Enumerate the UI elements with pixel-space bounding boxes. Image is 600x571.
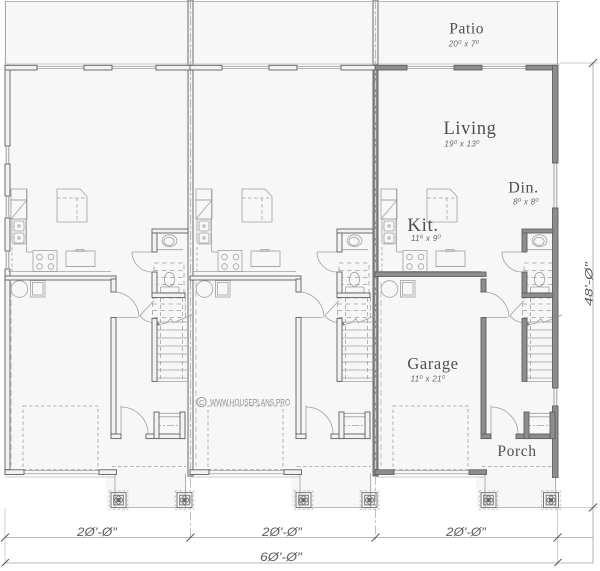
svg-text:110 x 210: 110 x 210 xyxy=(411,375,446,384)
svg-text:Din.: Din. xyxy=(508,180,538,197)
svg-text:2Ø'-Ø″: 2Ø'-Ø″ xyxy=(76,527,118,539)
svg-text:190 x 130: 190 x 130 xyxy=(444,140,480,149)
svg-text:2Ø'-Ø″: 2Ø'-Ø″ xyxy=(445,527,487,539)
svg-text:48'-Ø″: 48'-Ø″ xyxy=(584,260,596,306)
svg-text:Patio: Patio xyxy=(449,21,484,38)
svg-text:200 x 70: 200 x 70 xyxy=(448,40,480,49)
svg-text:6Ø'-Ø″: 6Ø'-Ø″ xyxy=(260,552,303,564)
svg-text:WWW.HOUSEPLANS.PRO: WWW.HOUSEPLANS.PRO xyxy=(210,398,290,409)
svg-text:2Ø'-Ø″: 2Ø'-Ø″ xyxy=(261,527,303,539)
svg-text:116 x 90: 116 x 90 xyxy=(411,234,442,243)
svg-text:Living: Living xyxy=(444,119,497,139)
svg-text:Garage: Garage xyxy=(407,354,458,373)
svg-text:Porch: Porch xyxy=(497,443,536,460)
svg-text:Kit.: Kit. xyxy=(407,215,438,236)
svg-text:C: C xyxy=(199,400,204,407)
